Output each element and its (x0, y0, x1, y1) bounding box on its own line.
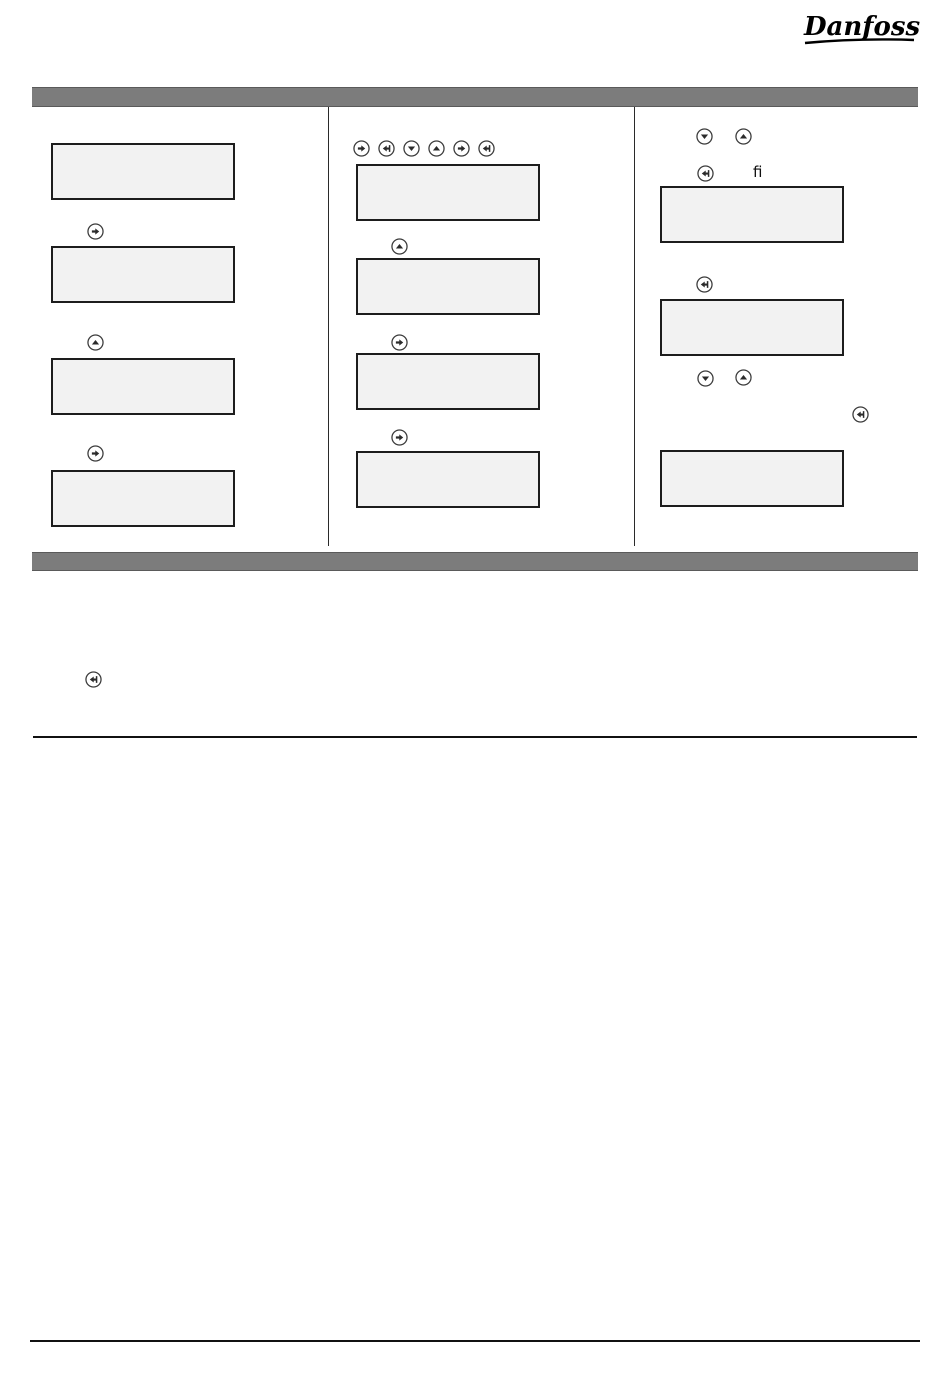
up-arrow-icon (735, 128, 752, 145)
down-arrow-icon (696, 128, 713, 145)
section-bar-top (32, 87, 918, 107)
enter-icon (378, 140, 395, 157)
right-arrow-icon (87, 223, 104, 240)
right-arrow-icon (453, 140, 470, 157)
enter-icon (852, 406, 869, 423)
lcd-display (51, 143, 235, 200)
lcd-display (51, 470, 235, 527)
section-rule (33, 736, 917, 738)
column-divider-left (328, 107, 329, 546)
lcd-display (356, 451, 540, 508)
down-arrow-icon (403, 140, 420, 157)
enter-icon (85, 671, 102, 688)
section-bar-bottom (32, 552, 918, 571)
right-arrow-icon (391, 429, 408, 446)
lcd-display (356, 164, 540, 221)
lcd-display (51, 358, 235, 415)
enter-icon (478, 140, 495, 157)
column-divider-right (634, 107, 635, 546)
up-arrow-icon (428, 140, 445, 157)
up-arrow-icon (87, 334, 104, 351)
lcd-display (660, 299, 844, 356)
enter-icon (697, 165, 714, 182)
enter-icon (696, 276, 713, 293)
document-page: Danfoss fi (0, 0, 950, 1378)
lcd-display (51, 246, 235, 303)
right-arrow-icon (87, 445, 104, 462)
danfoss-logo-text: Danfoss (803, 12, 920, 42)
down-arrow-icon (697, 370, 714, 387)
footer-rule (30, 1340, 920, 1342)
right-arrow-icon (391, 334, 408, 351)
ligature-text: fi (753, 163, 762, 181)
lcd-display (660, 186, 844, 243)
lcd-display (660, 450, 844, 507)
up-arrow-icon (735, 369, 752, 386)
danfoss-logo: Danfoss (800, 4, 922, 52)
up-arrow-icon (391, 238, 408, 255)
lcd-display (356, 258, 540, 315)
lcd-display (356, 353, 540, 410)
right-arrow-icon (353, 140, 370, 157)
